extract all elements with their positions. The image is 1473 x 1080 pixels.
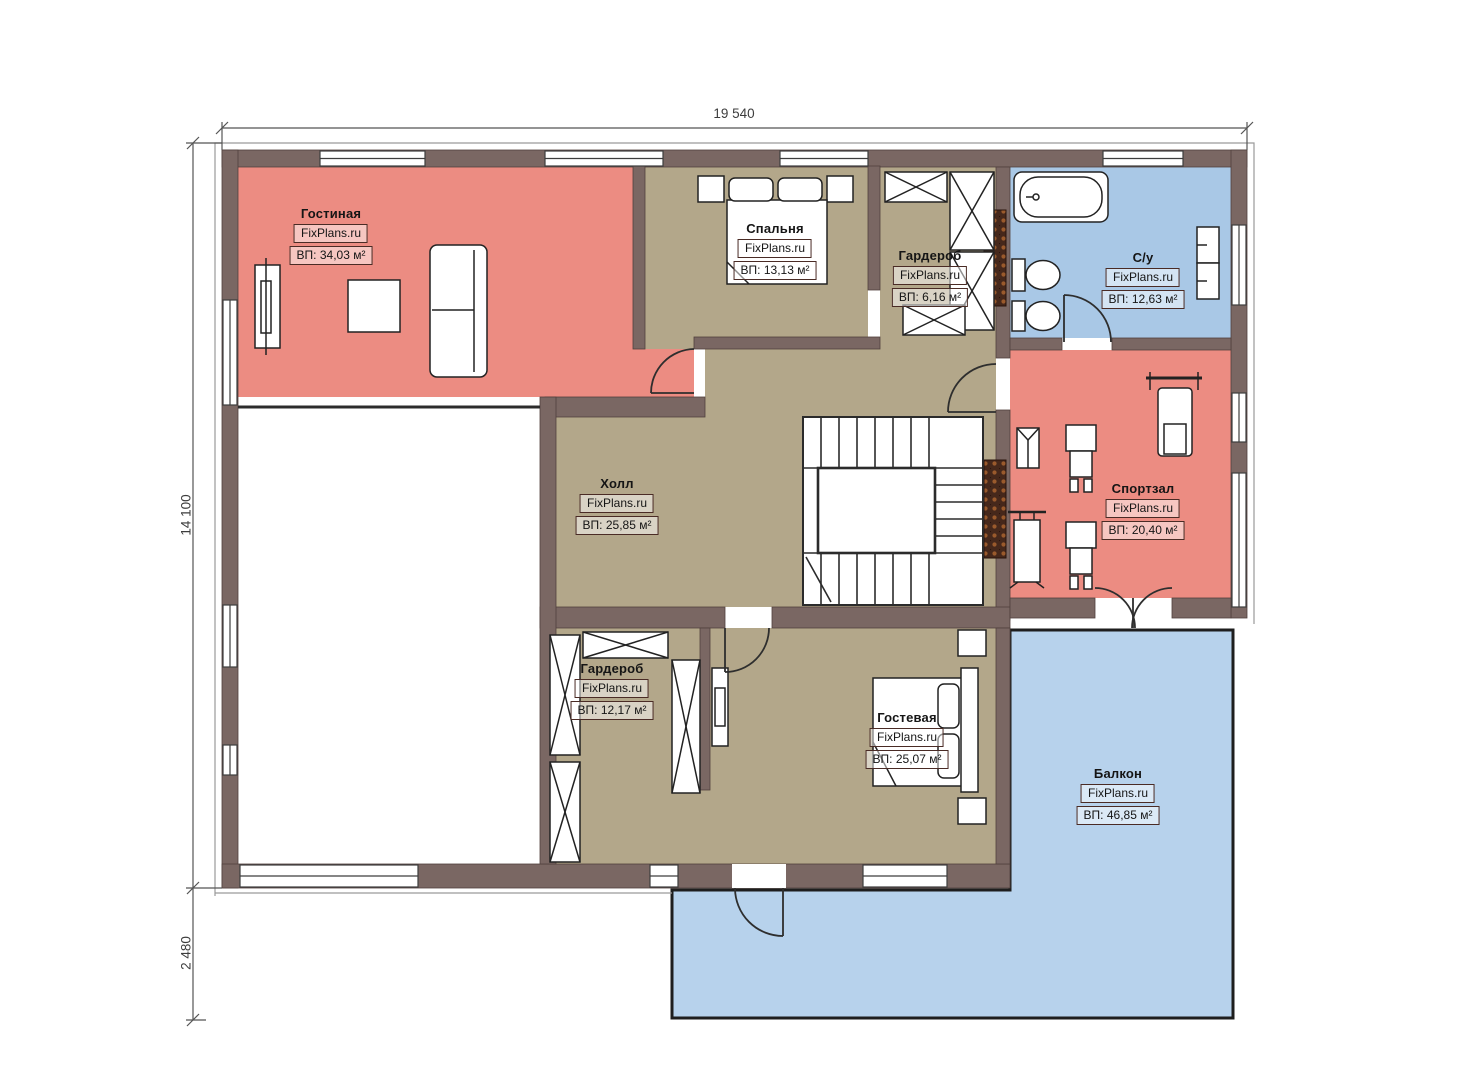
room-label-wardrobe-top: Гардероб FixPlans.ru ВП: 6,16 м² — [892, 248, 968, 307]
room-label-bathroom: С/у FixPlans.ru ВП: 12,63 м² — [1102, 250, 1185, 309]
area-value: ВП: 34,03 м² — [290, 246, 373, 265]
area-value: ВП: 25,07 м² — [866, 750, 949, 769]
dresser-icon — [712, 668, 728, 746]
brand-badge: FixPlans.ru — [1106, 268, 1180, 287]
room-label-guest: Гостевая FixPlans.ru ВП: 25,07 м² — [866, 710, 949, 769]
toilet-icon — [1012, 301, 1060, 331]
area-value: ВП: 12,17 м² — [571, 701, 654, 720]
dimension-left-lower: 2 480 — [179, 936, 194, 970]
room-label-gym: Спортзал FixPlans.ru ВП: 20,40 м² — [1102, 481, 1185, 540]
area-value: ВП: 6,16 м² — [892, 288, 968, 307]
brand-badge: FixPlans.ru — [580, 494, 654, 513]
area-value: ВП: 13,13 м² — [734, 261, 817, 280]
void-area — [238, 412, 540, 864]
brand-badge: FixPlans.ru — [870, 728, 944, 747]
area-value: ВП: 12,63 м² — [1102, 290, 1185, 309]
area-value: ВП: 46,85 м² — [1077, 806, 1160, 825]
brand-badge: FixPlans.ru — [1106, 499, 1180, 518]
brand-badge: FixPlans.ru — [294, 224, 368, 243]
area-value: ВП: 25,85 м² — [576, 516, 659, 535]
coffee-table-icon — [348, 280, 400, 332]
floor-plan-drawing — [0, 0, 1473, 1080]
brand-badge: FixPlans.ru — [738, 239, 812, 258]
stairs-icon — [803, 417, 983, 605]
brand-badge: FixPlans.ru — [575, 679, 649, 698]
sofa-icon — [430, 245, 487, 377]
room-label-bedroom: Спальня FixPlans.ru ВП: 13,13 м² — [734, 221, 817, 280]
guest-passage-fill — [700, 790, 710, 864]
room-label-living: Гостиная FixPlans.ru ВП: 34,03 м² — [290, 206, 373, 265]
room-label-wardrobe-bottom: Гардероб FixPlans.ru ВП: 12,17 м² — [571, 661, 654, 720]
room-label-hall: Холл FixPlans.ru ВП: 25,85 м² — [576, 476, 659, 535]
floor-plan: Гостиная FixPlans.ru ВП: 34,03 м² Спальн… — [0, 0, 1473, 1080]
balcony-door-opening — [732, 864, 786, 888]
dimension-top: 19 540 — [713, 106, 754, 121]
room-label-balcony: Балкон FixPlans.ru ВП: 46,85 м² — [1077, 766, 1160, 825]
brand-badge: FixPlans.ru — [1081, 784, 1155, 803]
bath-cabinet-icon — [1197, 227, 1219, 299]
dimension-left: 14 100 — [179, 494, 194, 535]
bathtub-icon — [1014, 172, 1108, 222]
brand-badge: FixPlans.ru — [893, 266, 967, 285]
area-value: ВП: 20,40 м² — [1102, 521, 1185, 540]
toilet-icon — [1012, 259, 1060, 291]
tv-console-icon — [255, 258, 280, 355]
